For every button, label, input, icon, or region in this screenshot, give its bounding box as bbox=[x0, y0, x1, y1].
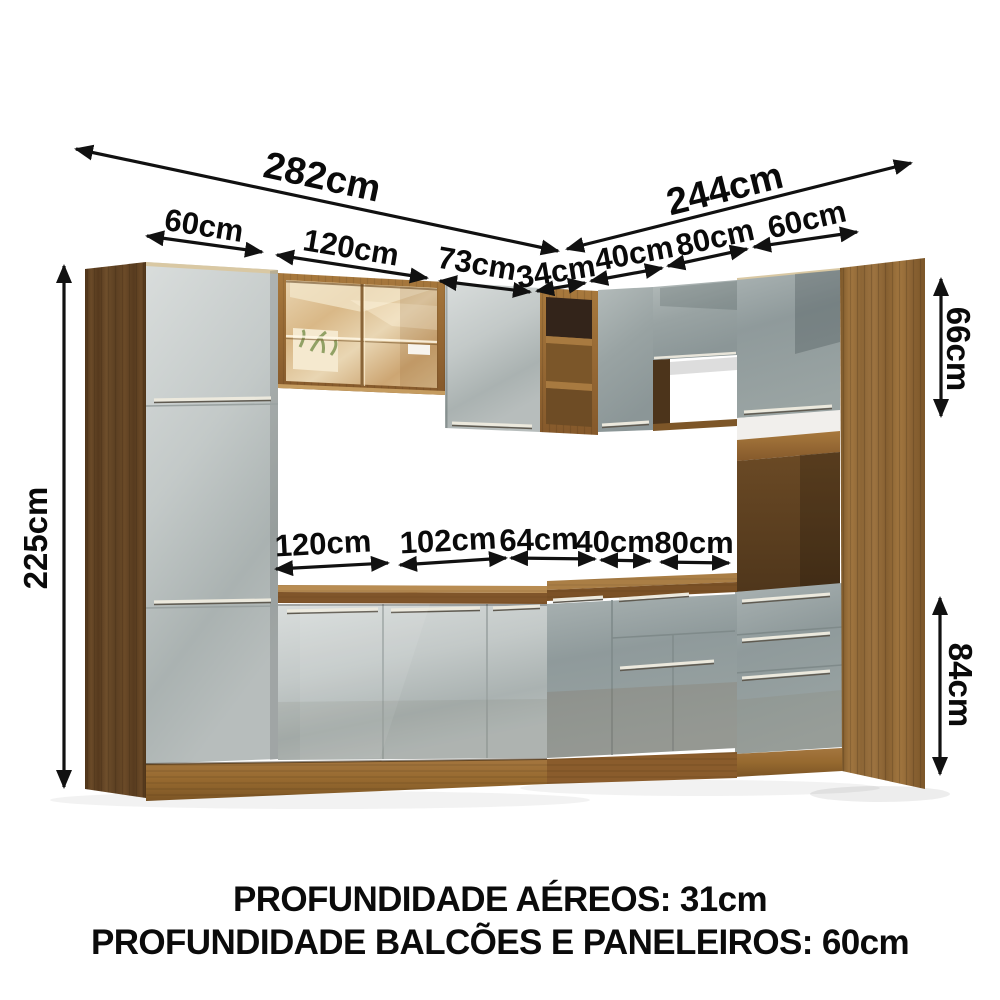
dim-label-mid-120: 120cm bbox=[274, 523, 372, 564]
depth-note-balcoes: PROFUNDIDADE BALCÕES E PANELEIROS: 60cm bbox=[0, 923, 1000, 963]
dim-label-mid-102: 102cm bbox=[399, 520, 497, 561]
microwave-niche bbox=[653, 357, 737, 431]
dim-label-height-upper: 66cm bbox=[939, 307, 977, 391]
dim-label-mid-80: 80cm bbox=[654, 525, 733, 561]
oven-tower-cabinet bbox=[735, 258, 925, 789]
kitchen-dimensions-diagram: 282cm 244cm 60cm 120cm 73cm 34cm 40cm 80… bbox=[0, 0, 1000, 1000]
corner-wall-cabinet bbox=[445, 282, 540, 432]
dim-label-height-base: 84cm bbox=[941, 643, 979, 727]
depth-note-aereos: PROFUNDIDADE AÉREOS: 31cm bbox=[0, 880, 1000, 920]
open-shelf-unit bbox=[540, 288, 598, 435]
dim-label-height-total: 225cm bbox=[17, 487, 55, 590]
glass-wall-cabinet bbox=[278, 273, 445, 395]
left-tall-cabinet bbox=[85, 262, 278, 798]
kitchen-illustration bbox=[0, 0, 1000, 1000]
base-cabinets-right bbox=[547, 594, 737, 758]
dim-label-mid-40: 40cm bbox=[575, 524, 654, 560]
dim-label-mid-64: 64cm bbox=[499, 521, 579, 559]
base-cabinets-left bbox=[278, 604, 547, 760]
